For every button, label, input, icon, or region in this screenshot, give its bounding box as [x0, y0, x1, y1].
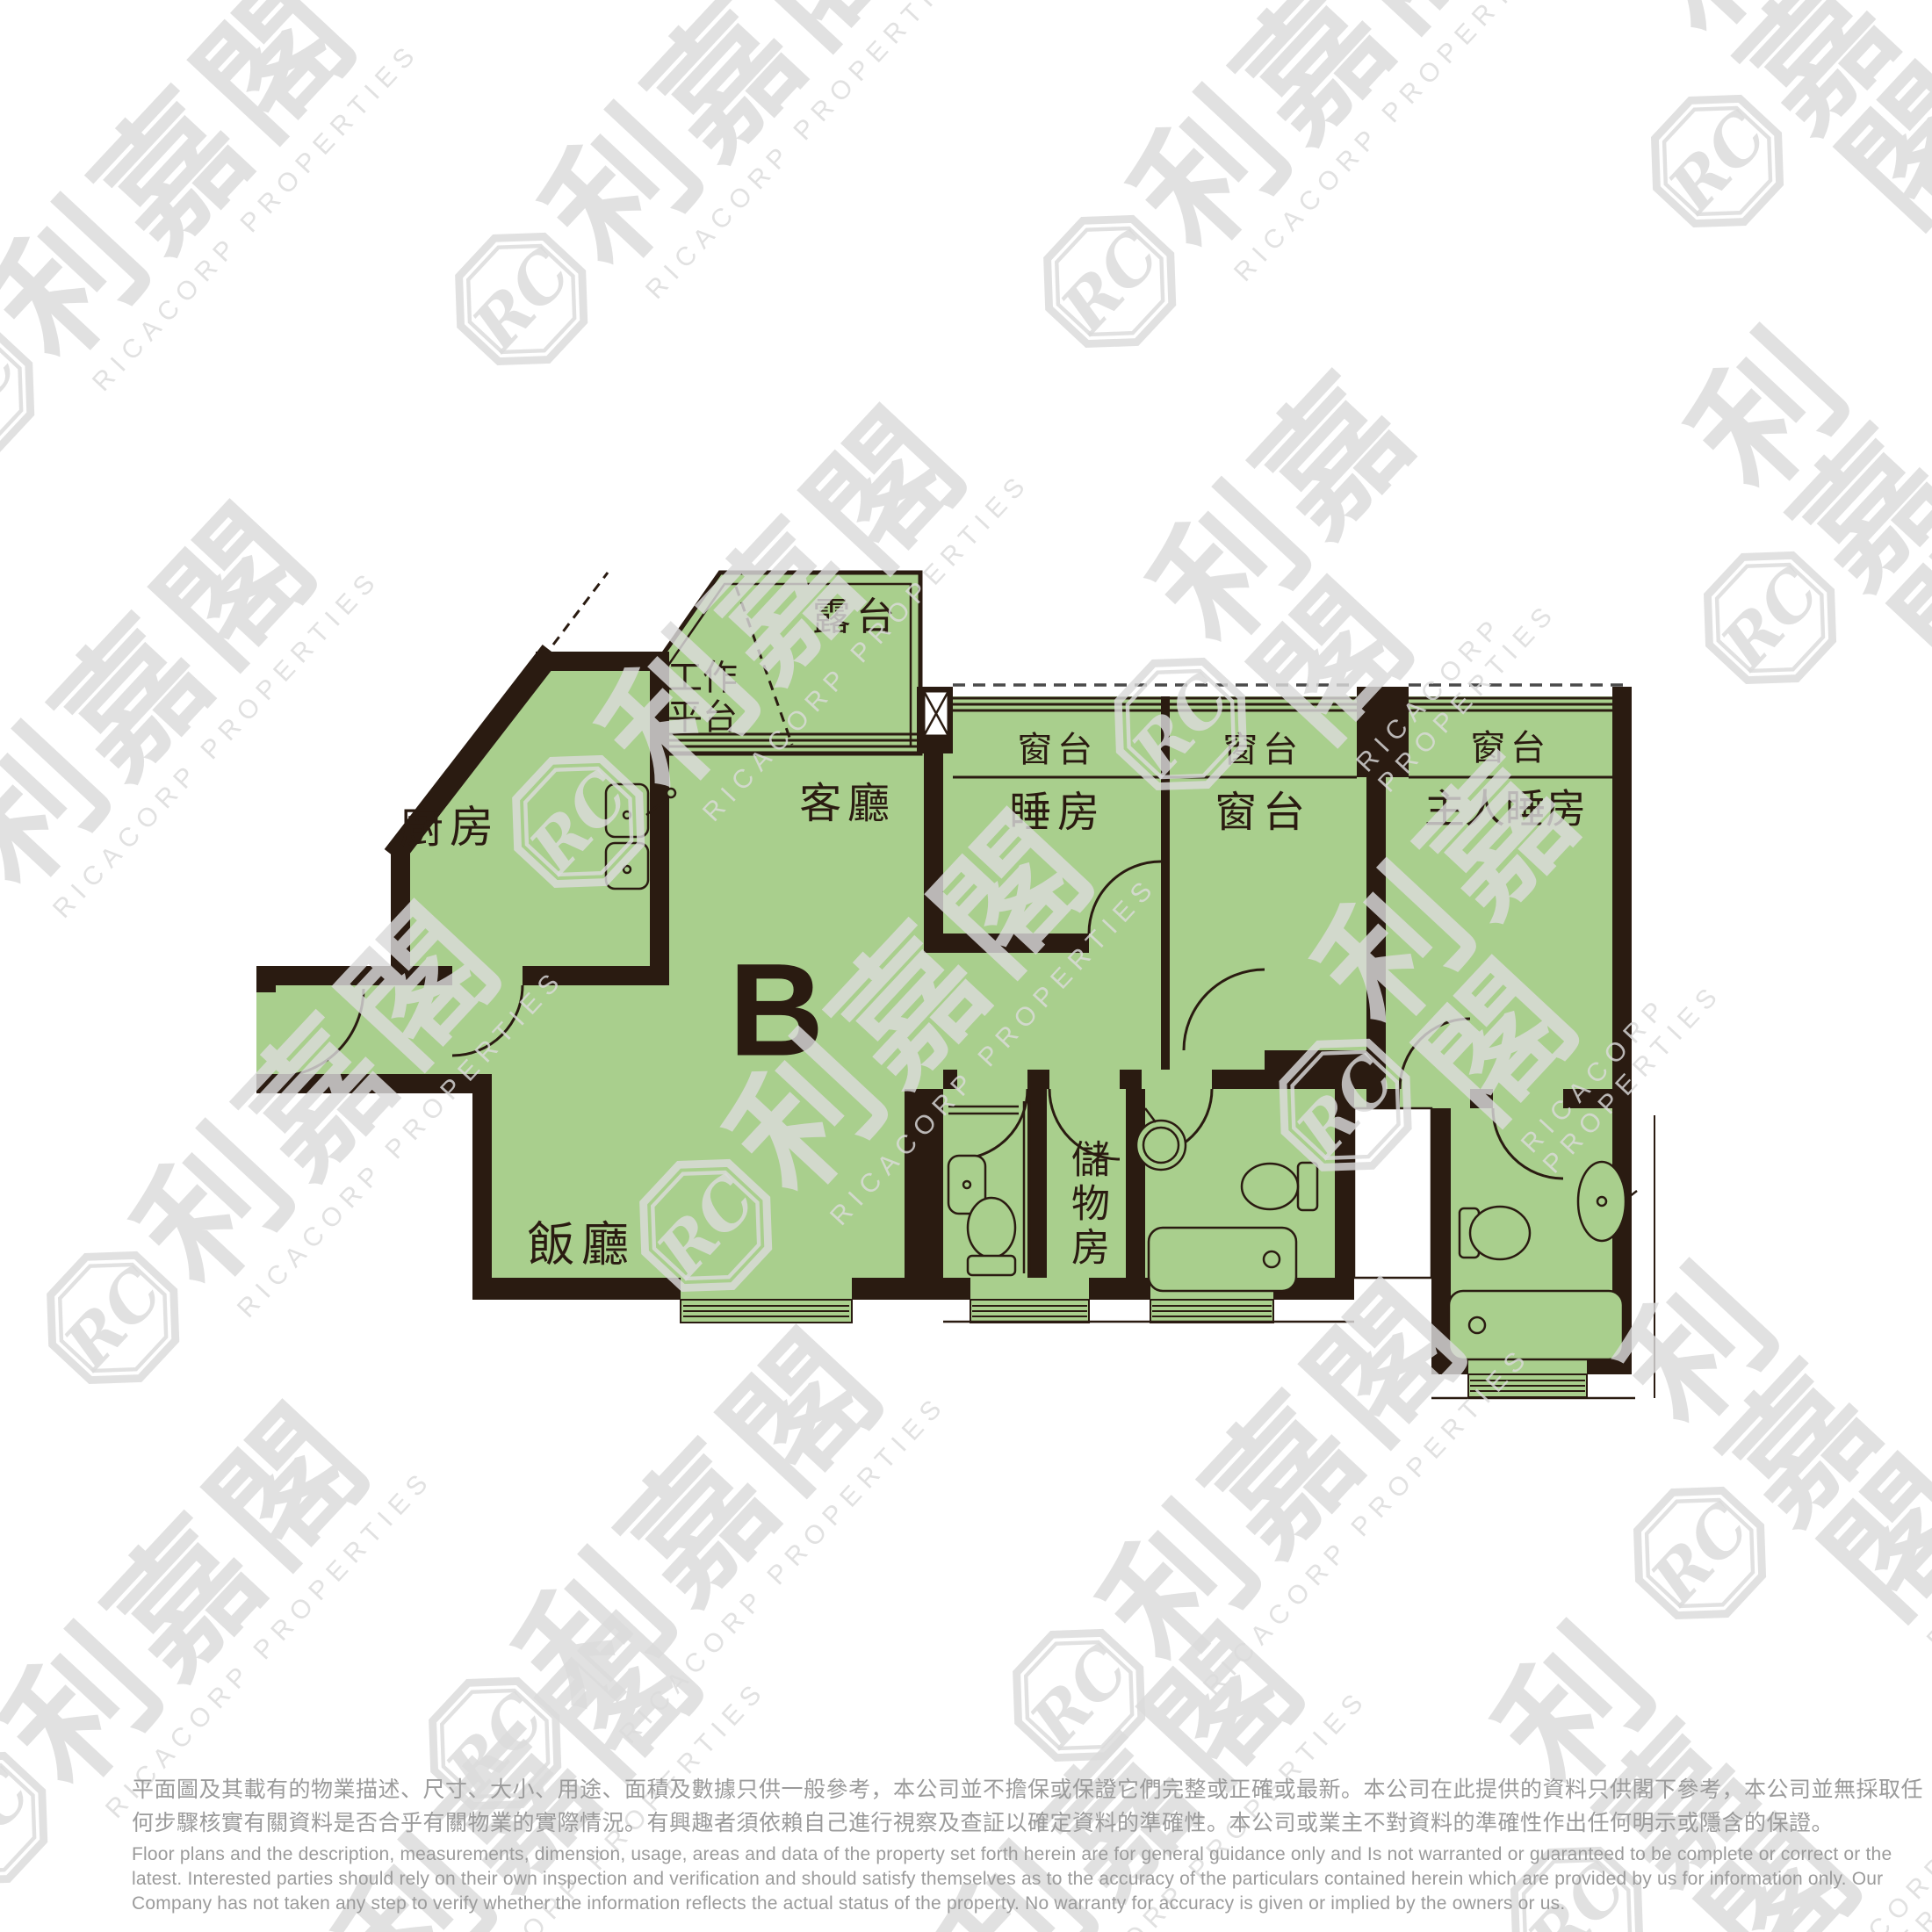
- balcony-area: [657, 573, 920, 753]
- x-column-marker: [924, 691, 948, 736]
- disclaimer-zh-line2: 何步驟核實有關資料是否合乎有關物業的實際情況。有興趣者須依賴自己進行視察及查証以…: [132, 1806, 1834, 1837]
- disclaimer-zh-line1: 平面圖及其載有的物業描述、尺寸、大小、用途、面積及數據只供一般參考，本公司並不擔…: [132, 1772, 1923, 1804]
- disclaimer-en-line3: Company has not taken any step to verify…: [132, 1893, 1565, 1914]
- disclaimer-en-line2: latest. Interested parties should rely o…: [132, 1869, 1883, 1890]
- floor-plan-canvas: 露台 工作 平台 廚房 客廳 B 飯廳 窗台 睡房 窗台 窗台 窗台 主人睡房 …: [0, 0, 1932, 1932]
- floor-plan-drawing: [0, 0, 1932, 1932]
- disclaimer-en-line1: Floor plans and the description, measure…: [132, 1844, 1892, 1865]
